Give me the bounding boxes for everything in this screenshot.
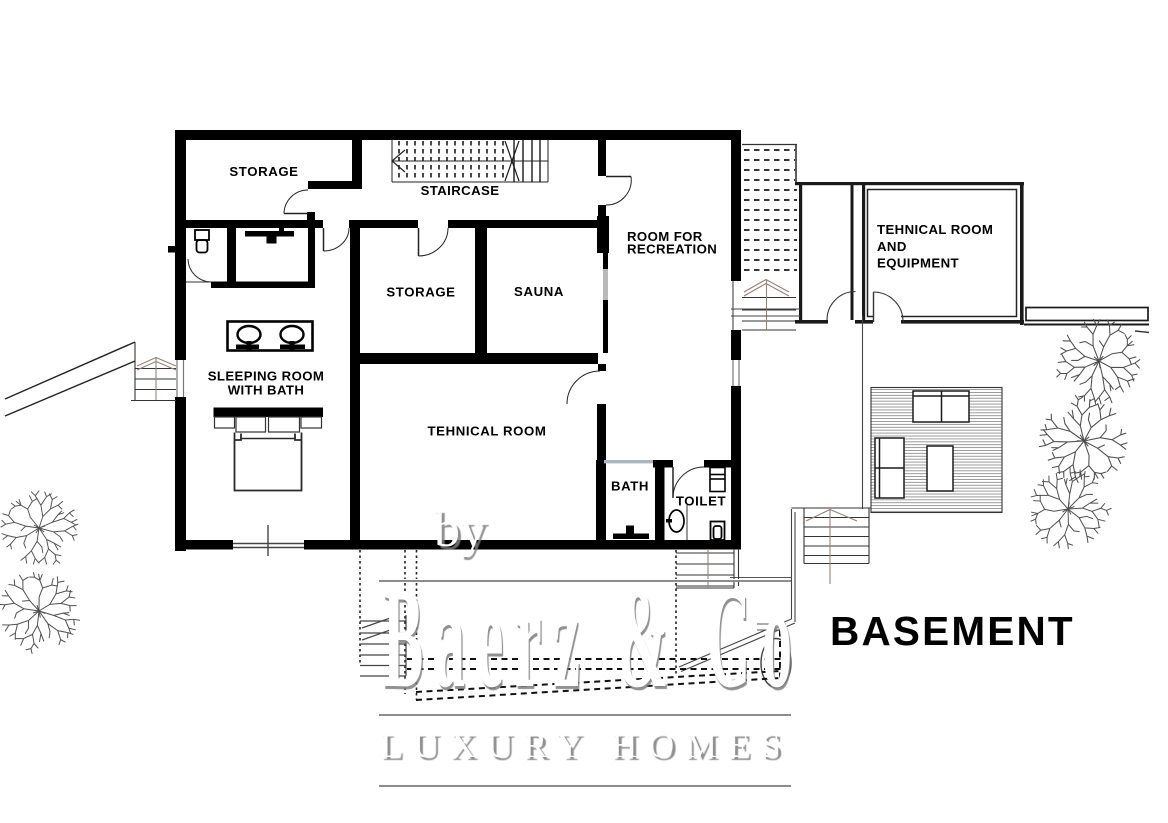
- svg-text:STAIRCASE: STAIRCASE: [421, 183, 500, 198]
- svg-text:TEHNICAL ROOM: TEHNICAL ROOM: [428, 424, 547, 439]
- svg-text:AND: AND: [877, 239, 907, 254]
- svg-text:TOILET: TOILET: [676, 494, 726, 509]
- svg-text:STORAGE: STORAGE: [229, 164, 298, 179]
- svg-text:TEHNICAL ROOM: TEHNICAL ROOM: [877, 222, 993, 237]
- svg-text:SLEEPING ROOM: SLEEPING ROOM: [208, 369, 325, 384]
- svg-text:SAUNA: SAUNA: [514, 284, 564, 299]
- svg-text:EQUIPMENT: EQUIPMENT: [877, 256, 959, 271]
- svg-text:BASEMENT: BASEMENT: [830, 608, 1075, 654]
- svg-text:WITH BATH: WITH BATH: [228, 383, 305, 398]
- svg-text:RECREATION: RECREATION: [627, 242, 717, 257]
- svg-text:BATH: BATH: [611, 479, 649, 494]
- svg-text:STORAGE: STORAGE: [386, 285, 455, 300]
